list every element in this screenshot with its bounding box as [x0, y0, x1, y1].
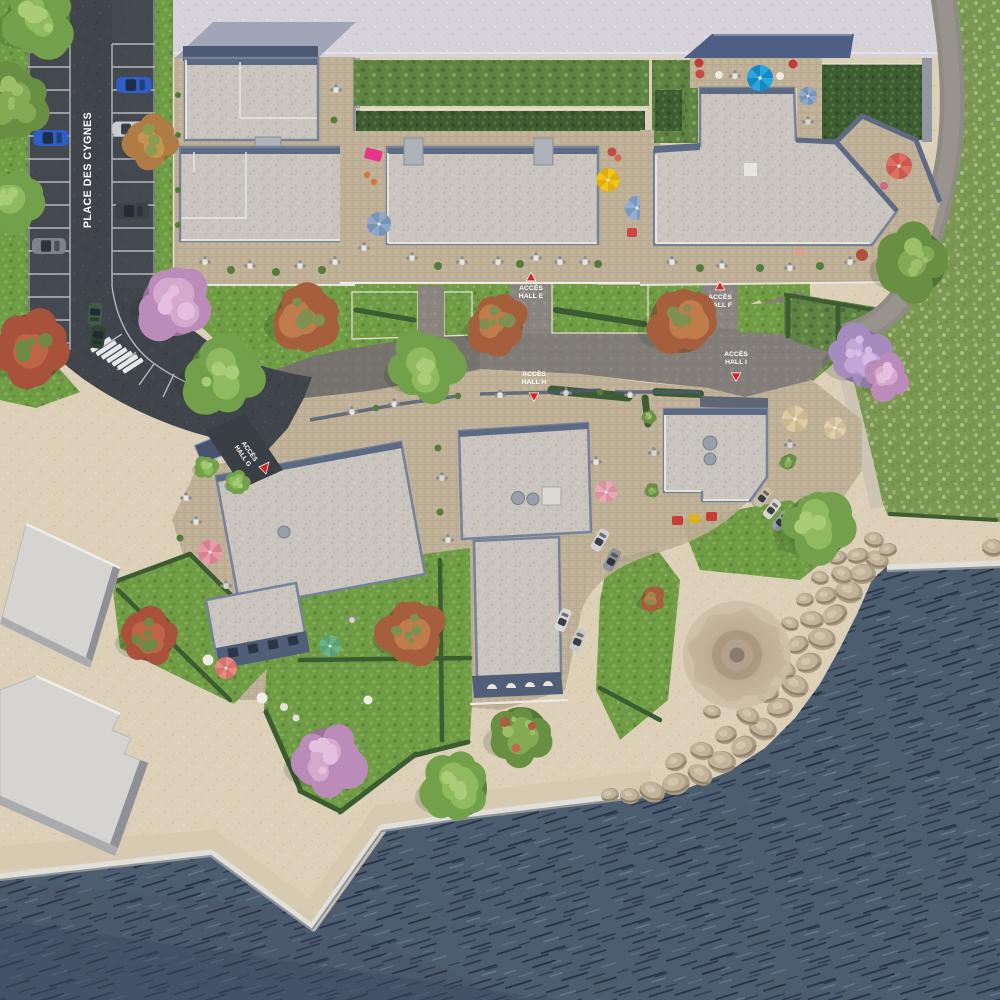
svg-text:ACCÈS: ACCÈS	[708, 292, 732, 301]
svg-text:HALL E: HALL E	[519, 293, 544, 300]
svg-text:HALL H: HALL H	[522, 379, 547, 386]
svg-text:ACCÈS: ACCÈS	[519, 283, 543, 292]
svg-text:ACCÈS: ACCÈS	[724, 349, 748, 358]
svg-text:PLACE DES CYGNES: PLACE DES CYGNES	[82, 112, 94, 228]
svg-text:ACCÈS: ACCÈS	[522, 369, 546, 378]
svg-text:HALL I: HALL I	[725, 359, 747, 366]
